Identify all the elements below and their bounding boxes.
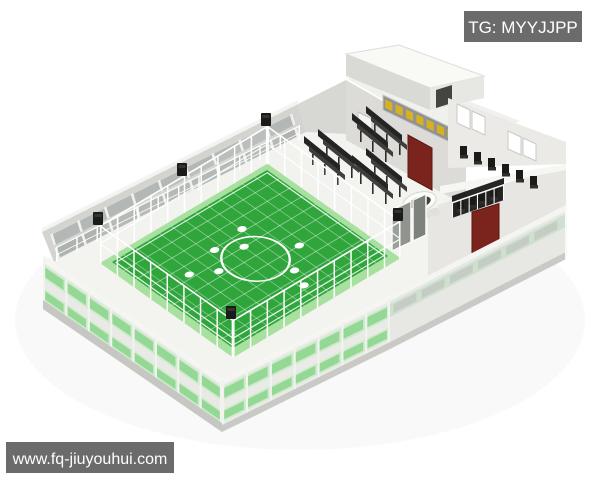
speaker-box [393,208,403,221]
telegram-badge-text: TG: MYYJJPP [468,18,578,37]
telegram-badge: TG: MYYJJPP [464,11,582,42]
clubhouse-left-wall [298,80,346,134]
render-canvas: TG: MYYJJPP www.fq-jiuyouhui.com [0,0,600,480]
speaker-box [93,212,103,225]
speaker-box [226,306,236,319]
speaker-box [261,113,271,126]
chair [488,158,496,171]
chair [460,146,468,159]
chair [474,152,482,165]
chair [530,176,538,189]
website-badge-text: www.fq-jiuyouhui.com [12,451,168,468]
website-badge: www.fq-jiuyouhui.com [6,442,174,473]
speaker-box [177,163,187,176]
chair [502,164,510,177]
chair [516,170,524,183]
